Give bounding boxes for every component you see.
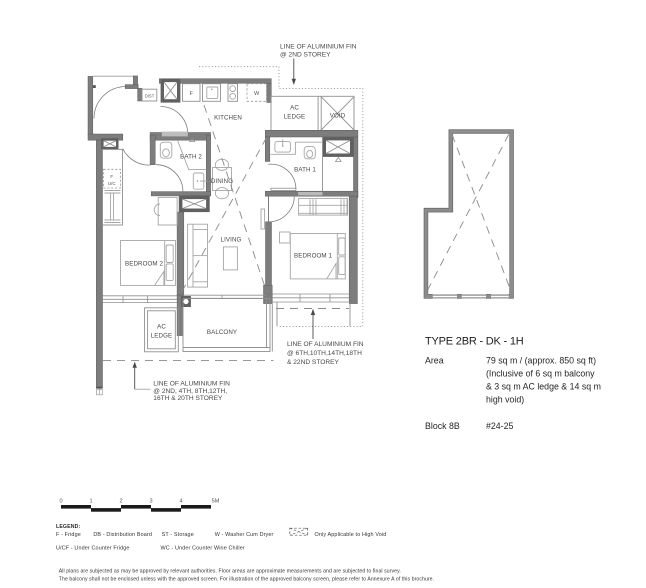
- svg-text:VOID: VOID: [330, 113, 346, 120]
- svg-text:All plans are subjected as may: All plans are subjected as may be approv…: [59, 568, 401, 574]
- svg-text:& 3 sq m AC ledge & 14 sq m: & 3 sq m AC ledge & 14 sq m: [486, 382, 601, 392]
- svg-text:ST - Storage: ST - Storage: [162, 532, 194, 538]
- svg-text:LEGEND:: LEGEND:: [56, 524, 81, 530]
- svg-text:WC - Under Counter Wine Chille: WC - Under Counter Wine Chiller: [161, 546, 245, 552]
- svg-text:BEDROOM 1: BEDROOM 1: [294, 252, 332, 259]
- svg-text:DINING: DINING: [211, 178, 233, 185]
- svg-text:U/CF - Under Counter Fridge: U/CF - Under Counter Fridge: [56, 546, 130, 552]
- svg-text:F: F: [110, 174, 113, 179]
- svg-text:LEDGE: LEDGE: [151, 332, 172, 339]
- svg-text:16TH & 20TH STOREY: 16TH & 20TH STOREY: [153, 395, 223, 402]
- svg-text:5M: 5M: [212, 499, 220, 505]
- svg-text:DIST: DIST: [145, 94, 155, 99]
- svg-text:0: 0: [59, 499, 62, 505]
- svg-text:BEDROOM 2: BEDROOM 2: [125, 260, 163, 267]
- svg-text:KITCHEN: KITCHEN: [214, 114, 242, 121]
- svg-text:@ 2ND STOREY: @ 2ND STOREY: [280, 52, 331, 59]
- svg-text:DB - Distribution Board: DB - Distribution Board: [93, 532, 152, 538]
- svg-text:#24-25: #24-25: [486, 421, 513, 431]
- svg-text:3: 3: [149, 499, 152, 505]
- svg-text:LINE OF ALUMINIUM FIN: LINE OF ALUMINIUM FIN: [153, 381, 230, 388]
- svg-text:BATH 1: BATH 1: [294, 167, 316, 174]
- svg-text:W: W: [254, 91, 260, 97]
- svg-text:F: F: [189, 91, 193, 97]
- svg-text:@ 6TH,10TH,14TH,18TH: @ 6TH,10TH,14TH,18TH: [287, 350, 362, 357]
- svg-text:The balcony shall not be enclo: The balcony shall not be enclosed unless…: [59, 577, 434, 583]
- svg-text:79 sq m / (approx. 850 sq ft): 79 sq m / (approx. 850 sq ft): [486, 356, 596, 366]
- svg-text:LINE OF ALUMINIUM FIN: LINE OF ALUMINIUM FIN: [280, 44, 357, 51]
- svg-text:1: 1: [89, 499, 92, 505]
- svg-text:high void): high void): [486, 395, 524, 405]
- svg-text:4: 4: [179, 499, 182, 505]
- svg-text:Block 8B: Block 8B: [425, 421, 460, 431]
- svg-text:Only Applicable to High Void: Only Applicable to High Void: [315, 532, 387, 538]
- svg-text:& 22ND STOREY: & 22ND STOREY: [287, 359, 340, 366]
- svg-text:@ 2ND, 4TH, 8TH,12TH,: @ 2ND, 4TH, 8TH,12TH,: [153, 388, 227, 395]
- svg-text:TYPE 2BR - DK - 1H: TYPE 2BR - DK - 1H: [425, 336, 524, 348]
- svg-text:2: 2: [119, 499, 122, 505]
- svg-text:U/C: U/C: [108, 181, 117, 186]
- svg-text:Area: Area: [425, 356, 444, 366]
- svg-text:W - Washer Cum Dryer: W - Washer Cum Dryer: [215, 532, 274, 538]
- svg-text:F - Fridge: F - Fridge: [56, 532, 81, 538]
- svg-text:BALCONY: BALCONY: [207, 329, 237, 336]
- svg-text:AC: AC: [290, 105, 299, 112]
- svg-text:(Inclusive of 6 sq m balcony: (Inclusive of 6 sq m balcony: [486, 369, 595, 379]
- svg-text:LEDGE: LEDGE: [284, 114, 305, 121]
- svg-text:LIVING: LIVING: [221, 236, 242, 243]
- svg-text:LINE OF ALUMINIUM FIN: LINE OF ALUMINIUM FIN: [287, 341, 364, 348]
- svg-text:AC: AC: [157, 323, 166, 330]
